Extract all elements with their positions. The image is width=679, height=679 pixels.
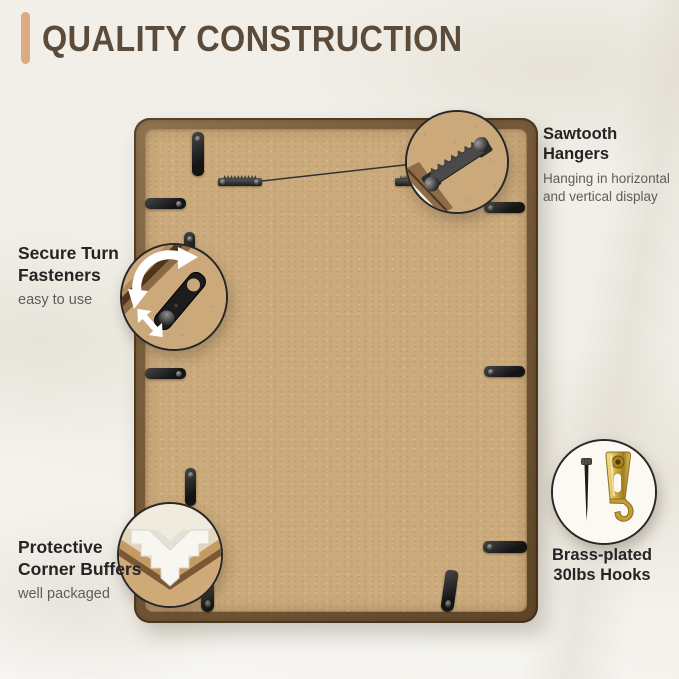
title-accent-bar xyxy=(21,12,30,64)
callout-title-line2: Fasteners xyxy=(18,265,101,285)
turn-fastener-clip-left-upper xyxy=(145,198,186,209)
turn-fastener-clip-right-middle xyxy=(484,366,525,377)
callout-description-line1: Hanging in horizontal xyxy=(543,171,670,186)
sawtooth-hanger-top-left xyxy=(218,178,262,186)
screw-icon xyxy=(176,371,182,377)
callout-description: easy to use xyxy=(18,291,138,310)
turn-fastener-clip-left-middle xyxy=(145,368,186,379)
callout-title-line1: Protective xyxy=(18,537,103,557)
callout-title-line2: 30lbs Hooks xyxy=(553,566,650,584)
turn-fastener-clip-top xyxy=(192,132,204,176)
screw-icon xyxy=(487,544,493,550)
callout-title: Sawtooth Hangers xyxy=(543,124,675,165)
page-title: QUALITY CONSTRUCTION xyxy=(42,18,463,60)
callout-turn-fasteners: Secure Turn Fasteners easy to use xyxy=(18,243,138,311)
screw-icon xyxy=(195,136,201,142)
callout-title-line2: Corner Buffers xyxy=(18,559,142,579)
callout-description: well packaged xyxy=(18,585,148,604)
screw-icon xyxy=(488,369,494,375)
callout-title-line1: Brass-plated xyxy=(552,546,652,564)
callout-brass-hooks: Brass-plated 30lbs Hooks xyxy=(538,545,666,586)
screw-icon xyxy=(187,236,193,242)
screw-icon xyxy=(176,201,182,207)
brass-hook-zoom-bubble xyxy=(551,439,657,545)
screw-icon xyxy=(220,179,226,185)
turn-fastener-clip-right-upper xyxy=(484,202,525,213)
brass-hook-and-nail-icon xyxy=(553,441,655,543)
sawtooth-hanger-icon xyxy=(407,112,507,212)
callout-corner-buffers: Protective Corner Buffers well packaged xyxy=(18,537,148,605)
screw-icon xyxy=(488,205,494,211)
screw-icon xyxy=(254,179,260,185)
screw-icon xyxy=(188,472,194,478)
sawtooth-zoom-bubble xyxy=(405,110,509,214)
turn-fastener-clip-left-lower xyxy=(185,468,196,506)
callout-description-line2: and vertical display xyxy=(543,189,658,204)
turn-fastener-clip-right-lower xyxy=(483,541,527,553)
callout-sawtooth-hangers: Sawtooth Hangers Hanging in horizontal a… xyxy=(543,124,675,206)
callout-title-line1: Secure Turn xyxy=(18,243,119,263)
